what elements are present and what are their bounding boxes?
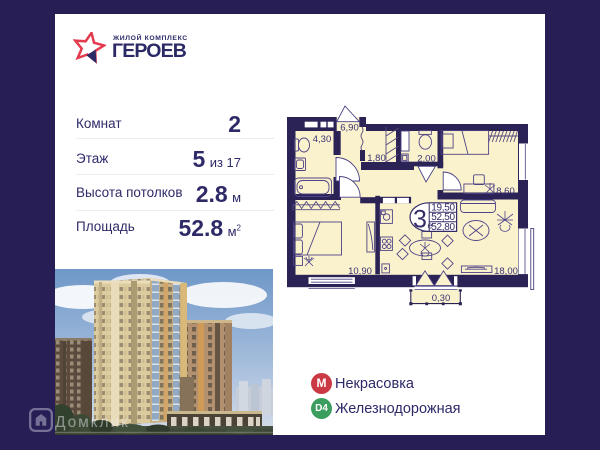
svg-text:8,60: 8,60 [496,186,515,197]
svg-text:6,90: 6,90 [340,123,359,134]
svg-text:0,30: 0,30 [432,293,451,304]
svg-text:10,90: 10,90 [348,266,372,277]
svg-text:1,80: 1,80 [367,153,386,164]
svg-text:2,00: 2,00 [417,154,436,165]
svg-text:18,00: 18,00 [494,266,518,277]
svg-text:3: 3 [413,206,427,234]
svg-text:4,30: 4,30 [313,134,332,145]
svg-text:52,80: 52,80 [431,222,455,233]
